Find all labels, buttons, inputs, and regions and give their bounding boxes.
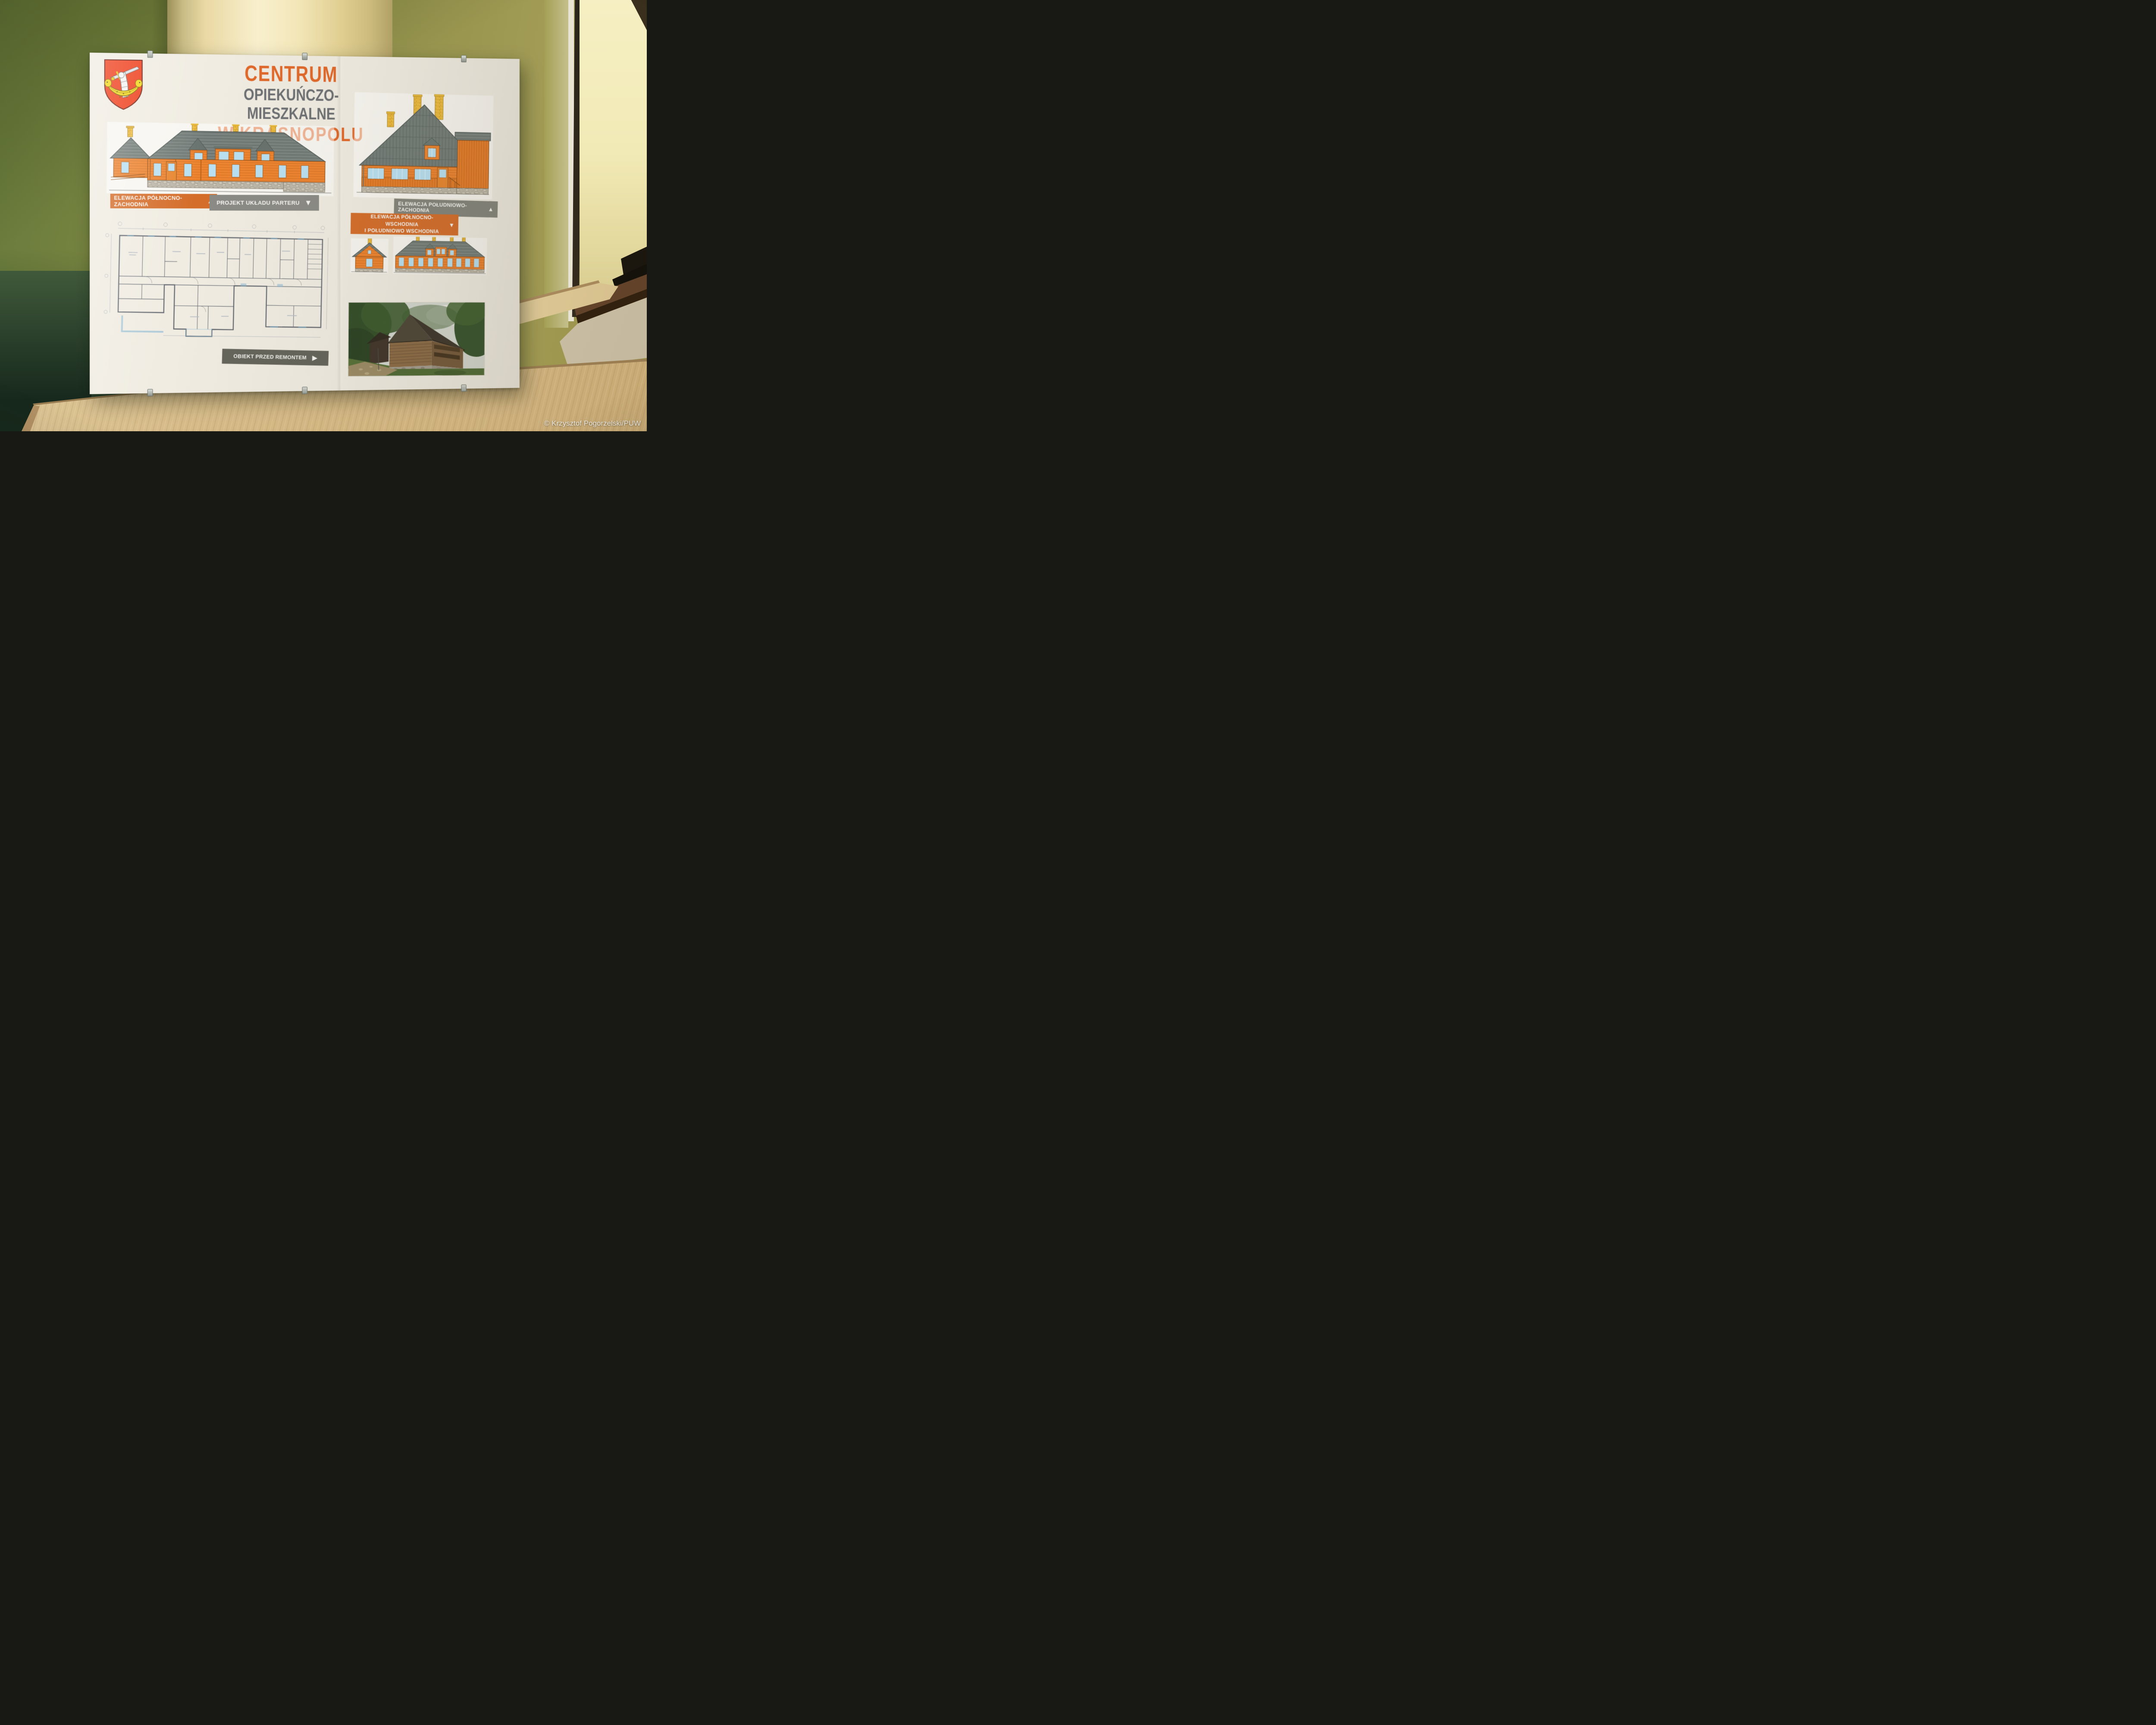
presentation-board: CENTRUM OPIEKUŃCZO-MIESZKALNE W KRASNOPO… bbox=[90, 53, 520, 394]
ne-elevation-drawing bbox=[350, 238, 388, 274]
photo-credit: © Krzysztof Pogorzelski/PUW bbox=[544, 419, 641, 428]
nw-elevation-drawing bbox=[106, 122, 334, 197]
board-clip bbox=[302, 387, 307, 394]
board-clip bbox=[461, 385, 467, 392]
right-triangle-icon: ▶ bbox=[312, 355, 317, 361]
title-line-2: OPIEKUŃCZO-MIESZKALNE bbox=[207, 85, 374, 124]
caption-before-renovation-text: OBIEKT PRZED REMONTEM bbox=[233, 353, 307, 361]
sw-elevation-drawing bbox=[353, 92, 494, 200]
down-triangle-icon: ▼ bbox=[449, 222, 454, 228]
down-triangle-icon: ▼ bbox=[304, 199, 312, 207]
board-clip bbox=[461, 55, 467, 63]
up-triangle-icon: ▲ bbox=[488, 206, 494, 212]
caption-ne-se-line2: I POŁUDNIOWO WSCHODNIA bbox=[364, 228, 439, 235]
floor-plan-drawing bbox=[101, 218, 332, 340]
se-elevation-drawing bbox=[393, 236, 487, 275]
caption-before-renovation: OBIEKT PRZED REMONTEM ▶ bbox=[222, 348, 329, 365]
krasnopol-coat-of-arms bbox=[102, 57, 145, 112]
caption-elevation-sw-text: ELEWACJA POŁUDNIOWO-ZACHODNIA bbox=[398, 201, 488, 215]
caption-plan-parter-text: PROJEKT UKŁADU PARTERU bbox=[216, 199, 299, 206]
before-renovation-photo bbox=[348, 302, 485, 377]
room-photo-scene: CENTRUM OPIEKUŃCZO-MIESZKALNE W KRASNOPO… bbox=[0, 0, 647, 431]
board-clip bbox=[147, 50, 153, 58]
title-line-1: CENTRUM bbox=[210, 62, 372, 87]
caption-elevation-nw-text: ELEWACJA PÓŁNOCNO-ZACHODNIA bbox=[114, 194, 207, 207]
board-clip bbox=[302, 53, 307, 60]
board-clip bbox=[147, 389, 153, 396]
caption-ne-se-line1: ELEWACJA PÓŁNOCNO-WSCHODNIA bbox=[370, 213, 433, 227]
caption-elevation-nw: ELEWACJA PÓŁNOCNO-ZACHODNIA ▲ bbox=[110, 194, 217, 208]
caption-elevation-ne-se: ELEWACJA PÓŁNOCNO-WSCHODNIA I POŁUDNIOWO… bbox=[351, 213, 459, 236]
caption-plan-parter: PROJEKT UKŁADU PARTERU ▼ bbox=[210, 194, 319, 210]
